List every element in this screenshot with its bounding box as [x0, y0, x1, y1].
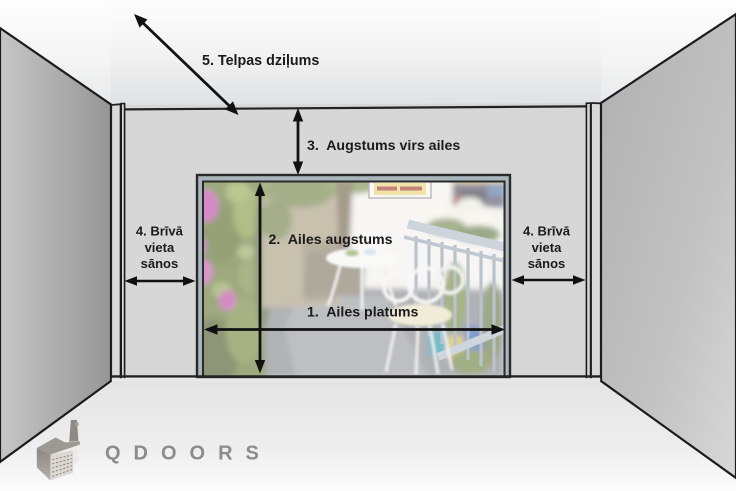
svg-text:4. Brīvā: 4. Brīvā	[136, 223, 184, 238]
svg-text:vieta: vieta	[145, 240, 175, 255]
svg-text:sānos: sānos	[528, 256, 566, 271]
svg-text:vieta: vieta	[532, 240, 562, 255]
svg-text:QDOORS: QDOORS	[105, 443, 272, 465]
svg-text:3. Augstums virs ailes: 3. Augstums virs ailes	[307, 138, 460, 154]
svg-text:1. Ailes platums: 1. Ailes platums	[307, 305, 419, 321]
svg-text:sānos: sānos	[141, 256, 179, 271]
svg-text:4. Brīvā: 4. Brīvā	[523, 223, 571, 238]
svg-text:2. Ailes augstums: 2. Ailes augstums	[269, 232, 393, 248]
svg-text:5. Telpas dziļums: 5. Telpas dziļums	[202, 53, 319, 69]
